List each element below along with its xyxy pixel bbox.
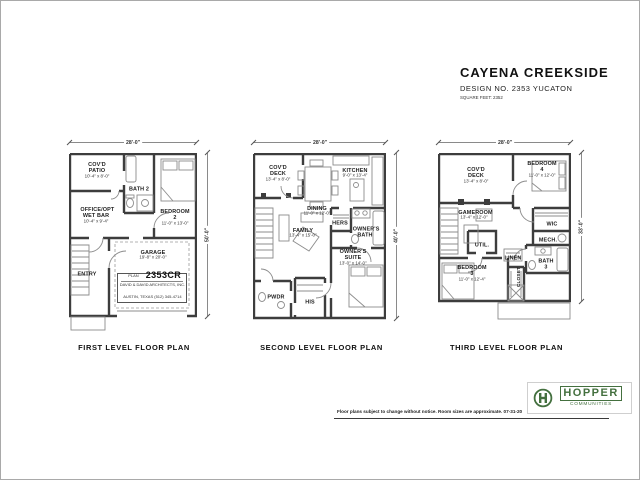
caption-second-level: SECOND LEVEL FLOOR PLAN (239, 343, 404, 352)
dimension-line-right: 40'-0" (396, 153, 397, 318)
room-label-hers: HERS (332, 214, 348, 226)
room-label-pwdr: PWDR (267, 288, 284, 300)
dimension-label: 33'-0" (578, 218, 584, 236)
plan-number-block: PLAN 2353CR DAVID & DAVID ARCHITECTS, IN… (117, 273, 187, 303)
plan-number: 2353CR (146, 270, 181, 280)
lower-roof-outline (498, 303, 570, 319)
dimension-label: 40'-0" (393, 226, 399, 244)
room-label-linen: LINEN (505, 249, 522, 261)
dimension-line-top: 28'-0" (69, 142, 197, 143)
room-label-bath-2: BATH 2 (127, 180, 150, 192)
square-feet: SQUARE FEET: 2352 (460, 95, 544, 100)
room-label-family: FAMILY13'-4" x 15'-0" (289, 221, 316, 245)
dimension-line-right: 33'-0" (581, 153, 582, 301)
attic-access-icon (508, 285, 524, 301)
hopper-h-circle-icon (533, 388, 553, 408)
room-label-wic: WIC (547, 215, 558, 227)
stairs-icon (440, 208, 458, 254)
room-label-bedroom-3: BEDROOM 311'-0" x 12'-4" (457, 258, 487, 288)
room-label-owners-suite: OWNER'S SUITE13'-0" x 14'-0" (339, 242, 366, 272)
room-label-kitchen: KITCHEN9'-0" x 13'-4" (340, 161, 370, 185)
design-number: DESIGN NO. 2353 YUCATON (460, 84, 612, 93)
title-block: CAYENA CREEKSIDE DESIGN NO. 2353 YUCATON… (460, 65, 612, 104)
disclaimer-text: Floor plans subject to change without no… (337, 409, 522, 414)
architect-firm: DAVID & DAVID ARCHITECTS, INC. (119, 282, 184, 288)
room-label-bath-3: BATH 3 (538, 252, 555, 271)
room-label-util: UTIL. (475, 236, 489, 248)
dimension-label: 28'-0" (310, 139, 328, 145)
room-label-garage: GARAGE19'-8" x 20'-0" (138, 243, 168, 267)
drawing-sheet: CAYENA CREEKSIDE DESIGN NO. 2353 YUCATON… (0, 0, 640, 480)
mech-equipment-icon (558, 234, 566, 242)
room-label-his: HIS (305, 293, 314, 305)
room-label-entry: ENTRY (78, 265, 97, 277)
dimension-label: 28'-0" (124, 139, 142, 145)
entry-stoop (71, 317, 105, 330)
room-label-bedroom-4: BEDROOM 411'-0" x 12'-0" (527, 154, 557, 184)
bed-icon (161, 159, 195, 201)
first-level-plan: 28'-0" 50'-0" (69, 153, 197, 333)
room-label-dining: DINING11'-0" x 12'-0" (303, 199, 330, 223)
room-label-mech: MECH. (539, 231, 557, 243)
caption-first-level: FIRST LEVEL FLOOR PLAN (59, 343, 209, 352)
hopper-communities-logo: HOPPER COMMUNITIES (527, 382, 632, 414)
second-level-plan: 28'-0" 40'-0" (253, 153, 386, 333)
dimension-line-top: 28'-0" (438, 142, 571, 143)
room-label-covd-deck: COV'D DECK13'-4" x 8'-0" (460, 160, 491, 190)
room-label-office: OFFICE/OPT WET BAR10'-4" x 9'-4" (80, 200, 111, 230)
logo-word: HOPPER (560, 386, 621, 401)
dimension-line-top: 28'-0" (253, 142, 386, 143)
architect-address: AUSTIN, TEXAS (512) 345-4714 (123, 294, 181, 300)
dimension-label: 28'-0" (495, 139, 513, 145)
logo-subtext: COMMUNITIES (570, 401, 612, 406)
room-label-gameroom: GAMEROOM13'-4" x 12'-0" (458, 203, 489, 227)
caption-third-level: THIRD LEVEL FLOOR PLAN (429, 343, 584, 352)
stairs-icon (255, 208, 273, 258)
plan-title: CAYENA CREEKSIDE (460, 65, 612, 80)
third-level-plan: 28'-0" 33'-0" (438, 153, 571, 333)
room-label-owners-bath: OWNER'S BATH (353, 220, 377, 239)
footer-rule (334, 418, 609, 419)
dimension-line-right: 50'-0" (207, 153, 208, 316)
room-label-covd-patio: COV'D PATIO10'-4" x 8'-0" (81, 155, 112, 185)
dimension-label: 50'-0" (204, 225, 210, 243)
room-label-closet: CLOSET (510, 267, 521, 287)
room-label-covd-deck: COV'D DECK13'-4" x 8'-0" (262, 158, 293, 188)
room-label-bedroom-2: BEDROOM 211'-0" x 13'-0" (160, 202, 190, 232)
